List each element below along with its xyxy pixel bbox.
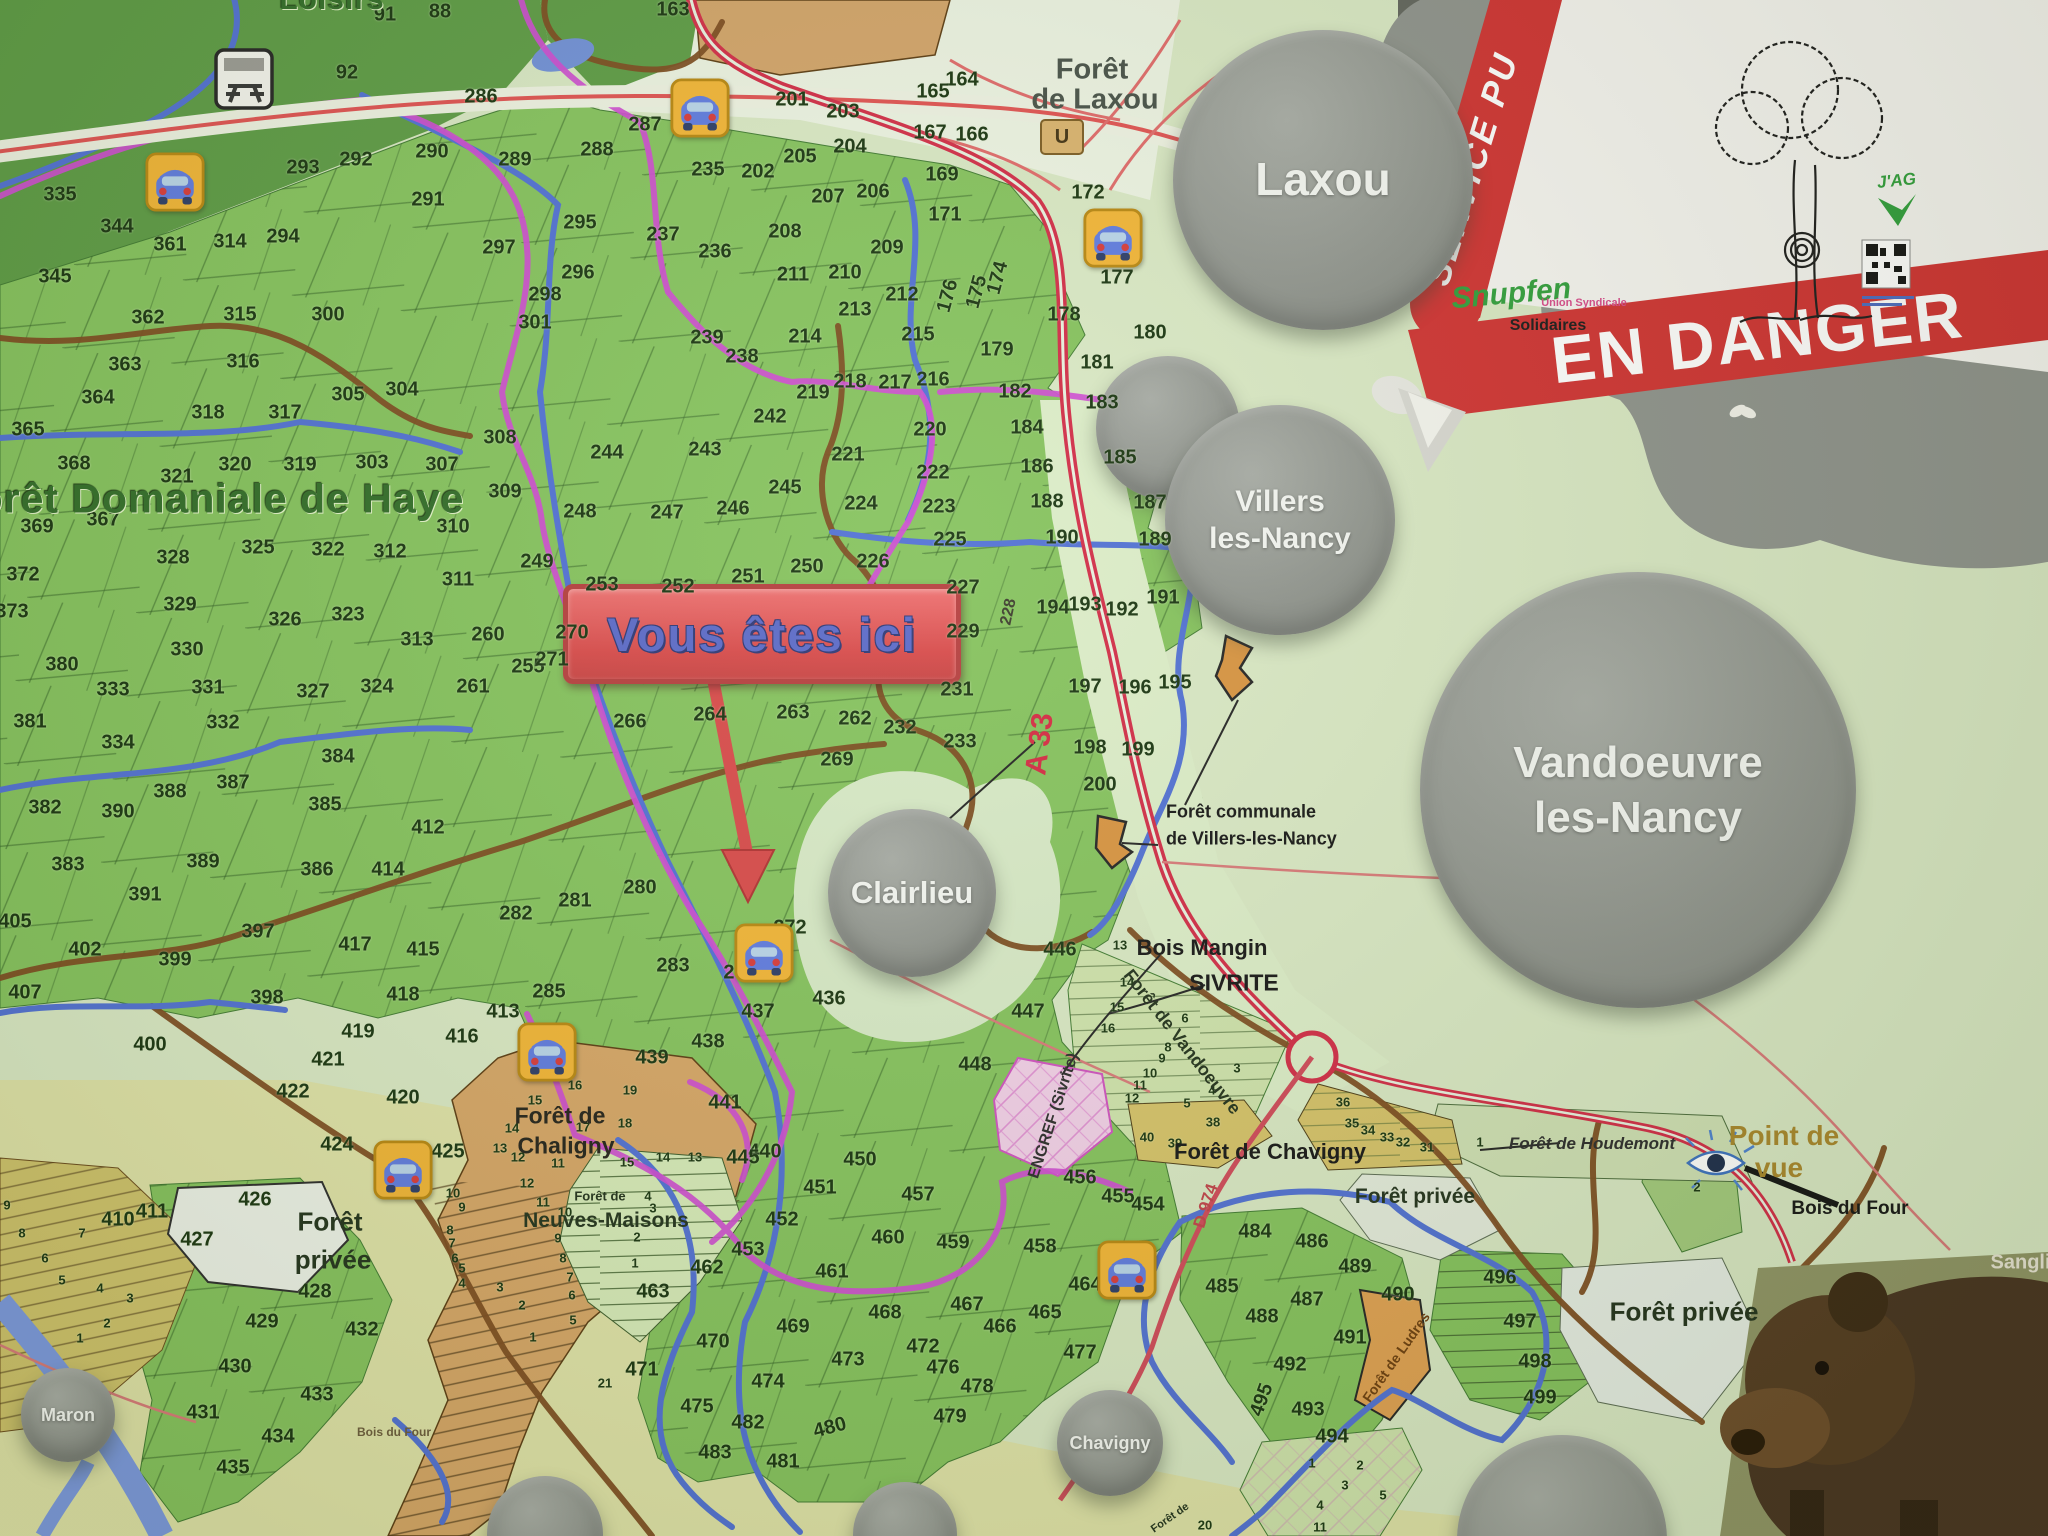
qr-code-icon: [1862, 240, 1910, 288]
sticker-union-text: Union Syndicale: [1541, 297, 1627, 309]
info-board-icon: [216, 50, 272, 108]
basemap-graphics: SERVICE PU EN DANGER Snupfen Solidaires …: [0, 0, 2048, 1536]
sticker-slogan-text: J'AG: [1876, 169, 1917, 192]
forest-map-photo: SERVICE PU EN DANGER Snupfen Solidaires …: [0, 0, 2048, 1536]
sticker-brand-sub-text: Solidaires: [1510, 317, 1587, 334]
